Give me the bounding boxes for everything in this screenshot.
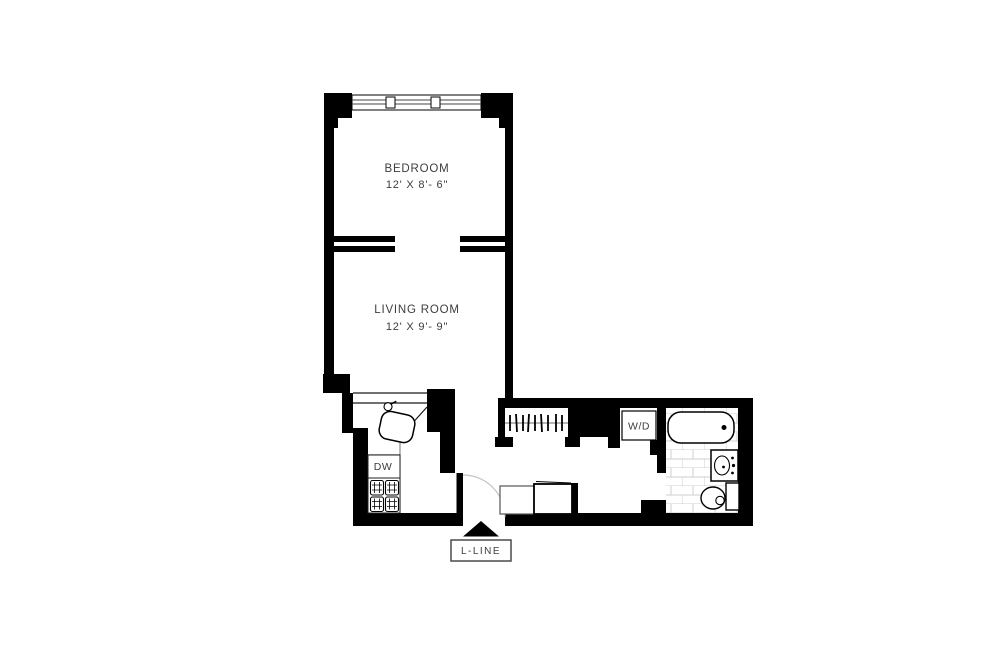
faucet-dot [732, 464, 735, 467]
bathroom-vanity [711, 450, 738, 481]
window-mullion [386, 97, 395, 108]
faucet-dot [731, 457, 734, 460]
burner [371, 481, 384, 496]
closet [505, 414, 568, 432]
burner [386, 497, 399, 512]
wall-bottom-right [505, 513, 753, 526]
washer-dryer: W/D [622, 411, 656, 440]
wall-wd-niche-foot [608, 437, 620, 448]
wall-hall-top [498, 398, 753, 408]
wall-bath-left-bump [650, 440, 657, 455]
toilet-tank [726, 483, 739, 510]
wall-east-upper [505, 113, 513, 398]
living-room-dimensions: 12' X 9'- 9" [386, 321, 448, 333]
washer-dryer-label: W/D [628, 421, 650, 433]
wall-closet-left [498, 408, 505, 437]
tub-drain [722, 425, 727, 430]
wall-closet-right-foot [565, 437, 580, 447]
entry-arrow [463, 521, 499, 537]
kitchen-sink [377, 399, 418, 444]
wall-kitchen-west-upper [342, 393, 353, 433]
wall-counter-column-ext [440, 432, 455, 473]
wall-bath-left [657, 408, 666, 473]
dishwasher-label: DW [374, 461, 393, 473]
bedroom-dimensions: 12' X 8'- 6" [386, 179, 448, 191]
burner [371, 497, 384, 512]
bathtub [668, 412, 734, 443]
wall-bottom-left [353, 513, 463, 526]
faucet-dot [731, 472, 734, 475]
living-room-label: LIVING ROOM [374, 304, 459, 316]
foyer-cabinet-large [534, 482, 572, 515]
l-line-tag: L-LINE [451, 540, 511, 561]
room-divider [334, 236, 505, 252]
wall-counter-column [427, 389, 455, 432]
bedroom-window [352, 95, 481, 110]
range-burners [368, 478, 400, 513]
burner [386, 481, 399, 496]
window-mullion [431, 97, 440, 108]
dishwasher: DW [368, 455, 400, 478]
floor-plan-drawing: DW [0, 0, 1000, 647]
entry-door-leaf [457, 473, 464, 517]
bedroom-label: BEDROOM [384, 163, 449, 175]
wall-bath-east [738, 398, 753, 526]
l-line-label: L-LINE [461, 546, 501, 557]
foyer-cabinet-small [500, 486, 534, 514]
entry-door-arc [463, 475, 505, 517]
wall-kitchen-west-lower [353, 428, 368, 526]
bathroom [666, 408, 739, 513]
wall-closet-left-foot [495, 437, 513, 447]
floor-plan-page: DW [0, 0, 1000, 647]
wall-kitchen-column [323, 374, 350, 393]
toilet-flush [716, 496, 724, 504]
wall-closet-right-mass [568, 406, 620, 437]
wall-west [324, 113, 334, 374]
wall-bath-door-block [641, 500, 666, 516]
